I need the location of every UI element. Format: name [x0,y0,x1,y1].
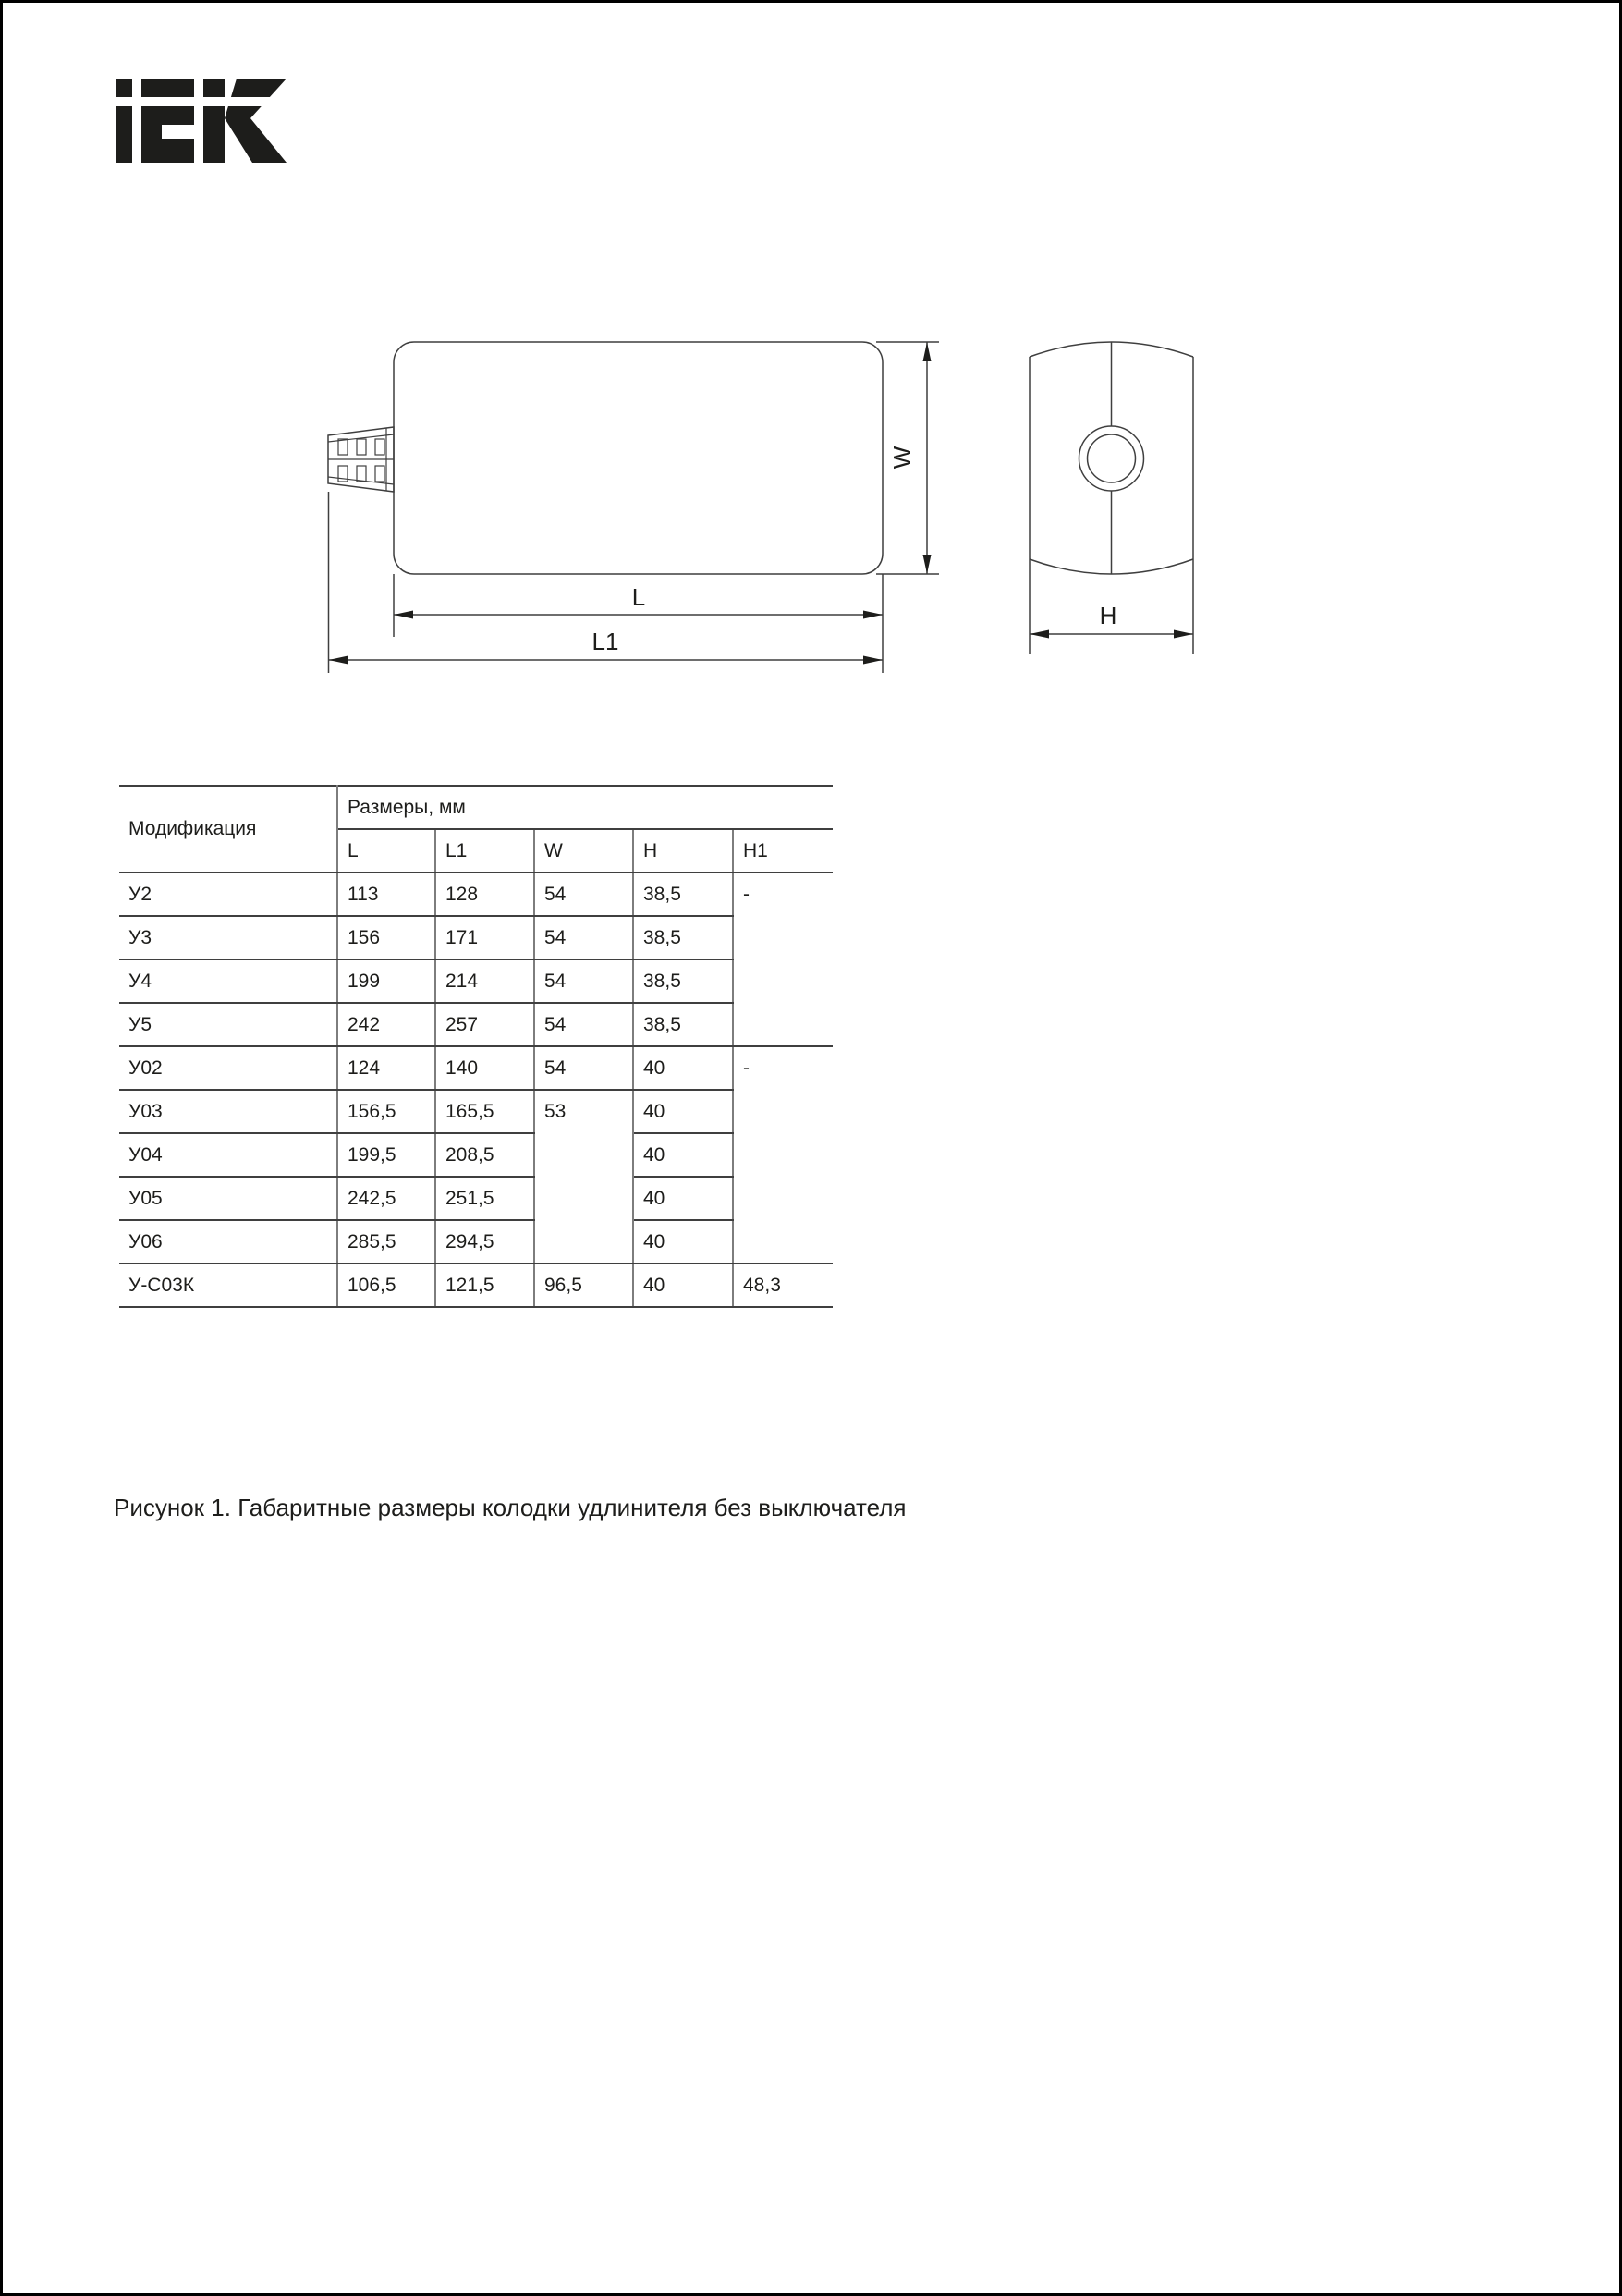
block-body-outline [394,342,883,574]
table-row: У02 124 140 54 40 - [119,1046,833,1090]
dimension-l1: L1 [329,492,884,673]
table-row: У05 242,5 251,5 40 [119,1177,833,1220]
dimension-l: L [394,574,883,673]
logo-letter-e-top [141,79,194,97]
cord-hole-outer [1079,426,1144,491]
header-dimensions-group: Размеры, мм [337,786,833,829]
dimension-h: H [1030,602,1193,639]
logo-letter-e-stem [141,97,162,163]
table-row: У04 199,5 208,5 40 [119,1133,833,1177]
dimension-label-l: L [632,583,645,611]
table-row: У2 113 128 54 38,5 - [119,873,833,916]
dimension-w: W [876,342,939,574]
iek-logo [112,75,287,163]
dimension-label-l1: L1 [592,628,619,655]
document-page: IEK [0,0,1622,2296]
row-name: У04 [119,1133,337,1177]
side-view [328,342,883,574]
row-name: У2 [119,873,337,916]
row-name: У06 [119,1220,337,1264]
cord-hole-inner [1088,434,1136,482]
cable-gland [328,427,394,492]
header-col-h1: H1 [733,829,833,873]
header-col-l: L [337,829,435,873]
header-modification: Модификация [119,786,337,873]
figure-caption: Рисунок 1. Габаритные размеры колодки уд… [114,1494,906,1522]
header-col-w: W [534,829,633,873]
table-row: У4 199 214 54 38,5 [119,959,833,1003]
logo-letter-e-bottom [162,139,194,163]
table-row: У5 242 257 54 38,5 [119,1003,833,1046]
row-name: У5 [119,1003,337,1046]
logo-letter-k-stem [203,79,225,163]
table-row: У03 156,5 165,5 53 40 [119,1090,833,1133]
row-name: У-С03К [119,1264,337,1307]
logo-text: IEK [3,3,4,4]
row-name: У3 [119,916,337,959]
logo-letter-k-lower-arm [225,118,287,163]
table-row: У-С03К 106,5 121,5 96,5 40 48,3 [119,1264,833,1307]
logo-letter-e-mid [162,106,194,125]
technical-drawing: W L L1 [308,317,1232,687]
logo-stripe [112,97,287,106]
logo-letter-i [116,79,132,163]
dimension-label-w: W [888,446,916,469]
row-name: У02 [119,1046,337,1090]
table-row: У06 285,5 294,5 40 [119,1220,833,1264]
header-col-h: H [633,829,733,873]
table-header-row-1: Модификация Размеры, мм [119,786,833,829]
header-col-l1: L1 [435,829,534,873]
row-name: У03 [119,1090,337,1133]
table-row: У3 156 171 54 38,5 [119,916,833,959]
dimensions-table: Модификация Размеры, мм L L1 W H H1 У2 1… [119,785,833,1308]
dimension-label-h: H [1100,602,1117,629]
row-name: У05 [119,1177,337,1220]
row-name: У4 [119,959,337,1003]
